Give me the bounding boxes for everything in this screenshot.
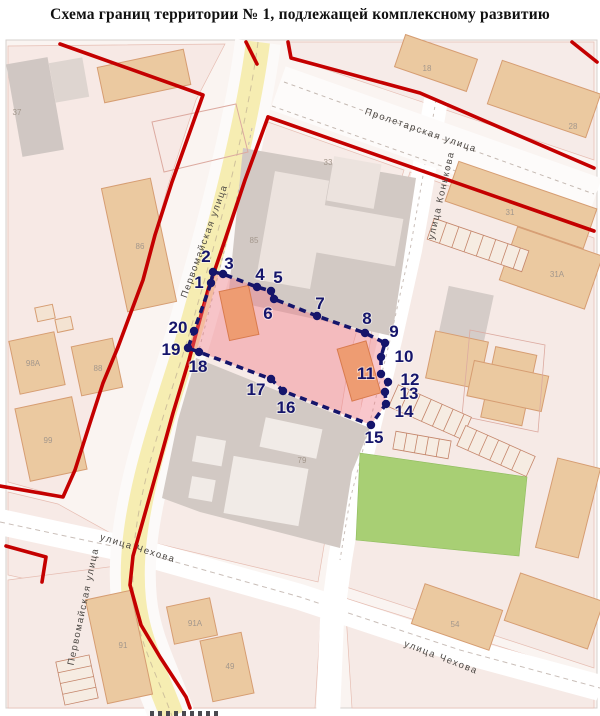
boundary-point-label-11: 11: [357, 364, 375, 383]
building-label-99: 99: [44, 436, 53, 445]
boundary-point-label-3: 3: [224, 254, 233, 273]
boundary-point-label-18: 18: [189, 357, 208, 376]
building-label-33: 33: [324, 158, 333, 167]
building-label-31: 31: [506, 208, 515, 217]
building-label-37: 37: [13, 108, 22, 117]
boundary-point-label-4: 4: [255, 265, 265, 284]
legend-hatch-stub: [150, 711, 218, 716]
building-label-31a: 31А: [550, 270, 565, 279]
boundary-point-label-5: 5: [273, 268, 282, 287]
boundary-point-label-16: 16: [277, 398, 296, 417]
page: { "title": "Схема границ территории № 1,…: [0, 0, 600, 716]
boundary-point-label-8: 8: [362, 309, 371, 328]
building-label-98a: 98А: [26, 359, 41, 368]
building-label-91: 91: [119, 641, 128, 650]
boundary-point-label-19: 19: [162, 340, 181, 359]
map-canvas: 37 86 88 98А 99 91 91А 49 85 33 79 18 28…: [0, 0, 600, 716]
building-label-88: 88: [94, 364, 103, 373]
boundary-point-label-17: 17: [247, 380, 266, 399]
building-label-85: 85: [250, 236, 259, 245]
building-label-79: 79: [298, 456, 307, 465]
building-label-91a: 91А: [188, 619, 203, 628]
building-label-86: 86: [136, 242, 145, 251]
boundary-point-label-7: 7: [315, 294, 324, 313]
boundary-point-label-2: 2: [201, 247, 210, 266]
building-label-28: 28: [569, 122, 578, 131]
boundary-point-label-15: 15: [365, 428, 384, 447]
boundary-point-label-10: 10: [395, 347, 414, 366]
building-label-54: 54: [451, 620, 460, 629]
boundary-point-label-13: 13: [400, 384, 419, 403]
boundary-point-label-20: 20: [169, 318, 188, 337]
boundary-point-label-9: 9: [389, 322, 398, 341]
boundary-point-label-1: 1: [194, 273, 203, 292]
boundary-point-label-6: 6: [263, 304, 272, 323]
building-label-49: 49: [226, 662, 235, 671]
building-label-18: 18: [423, 64, 432, 73]
boundary-point-label-14: 14: [395, 402, 414, 421]
